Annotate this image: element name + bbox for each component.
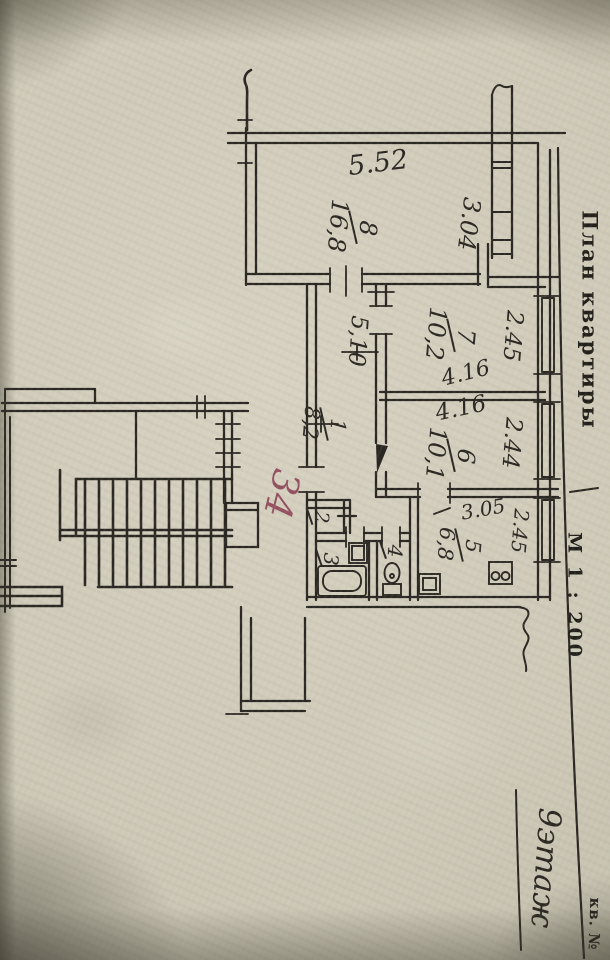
scanned-floor-plan-page: 5.52 3.04 5,10 2.45 4.16 4.16 2.44 3.05 … [0, 0, 610, 960]
margin-title: План квартиры [580, 210, 601, 429]
bathtub-icon [318, 566, 366, 596]
margin-apartment-label: кв. № [586, 897, 603, 951]
lower-building-section [226, 607, 310, 714]
washbasin-icon [349, 543, 367, 563]
bottom-wall [307, 597, 550, 671]
toilet-icon [383, 563, 401, 595]
dim-top-width: 5.52 [347, 146, 410, 180]
door-leaf-room6 [376, 444, 388, 473]
room-4-label: 4 [380, 541, 405, 561]
dim-balcony: 3.04 [454, 196, 484, 252]
room-5-label: 5 6,8 [434, 526, 485, 564]
room-2-label: 2 [307, 507, 331, 527]
exterior-wall-windows [534, 143, 560, 600]
floor-note-handwritten: 9этаж [525, 807, 564, 929]
room-1-label: 1 8,2 [299, 405, 350, 443]
room-8-label: 8 16,8 [324, 198, 382, 256]
room-3-label: 3 [316, 549, 341, 569]
staircase-steps [60, 470, 232, 587]
dim-kitchen-depth: 2.45 [508, 508, 532, 554]
stove-icon [489, 562, 512, 584]
dim-room6-depth: 2.44 [497, 416, 524, 469]
red-apartment-number-note: 34 [258, 466, 307, 522]
floor-note-underline [516, 790, 521, 950]
stairwell-walls [0, 389, 258, 612]
room-6-label: 6 10,1 [422, 426, 480, 484]
balcony [492, 85, 512, 258]
kitchen-sink-icon [419, 574, 440, 594]
dim-corridor-length: 5,10 [344, 315, 371, 368]
dim-room7-depth: 2.45 [498, 309, 525, 362]
margin-scale: М 1 : 200 [565, 532, 584, 660]
room-7-label: 7 10,2 [422, 306, 480, 364]
room8-walls [228, 70, 565, 296]
